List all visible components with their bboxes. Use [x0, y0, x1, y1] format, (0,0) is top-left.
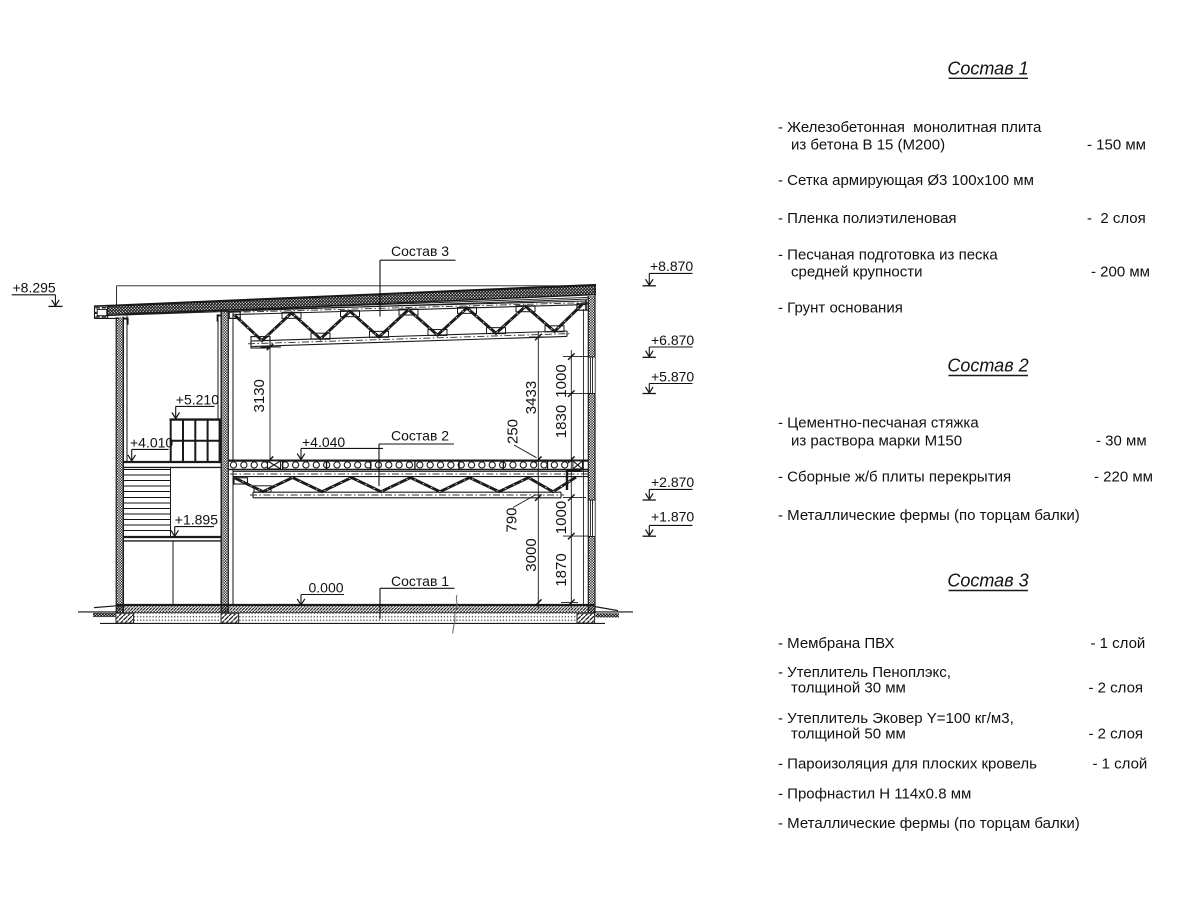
- svg-text:1000: 1000: [553, 501, 570, 534]
- svg-text:3433: 3433: [523, 381, 540, 414]
- svg-text:- 30 мм: - 30 мм: [1096, 432, 1147, 449]
- svg-text:+6.870: +6.870: [651, 332, 694, 348]
- svg-text:- 1 слой: - 1 слой: [1093, 755, 1148, 772]
- svg-text:+8.295: +8.295: [13, 279, 56, 295]
- svg-text:- 1 слой: - 1 слой: [1091, 635, 1146, 652]
- svg-text:средней крупности: средней крупности: [791, 263, 923, 280]
- svg-text:- 2 слоя: - 2 слоя: [1087, 210, 1146, 227]
- svg-text:3130: 3130: [251, 379, 268, 412]
- svg-text:- 2 слоя: - 2 слоя: [1089, 725, 1144, 742]
- svg-text:+2.870: +2.870: [651, 474, 694, 490]
- svg-text:из раствора марки М150: из раствора марки М150: [791, 432, 962, 449]
- svg-text:- Пароизоляция для плоских кро: - Пароизоляция для плоских кровель: [778, 755, 1037, 772]
- svg-text:- Металлические фермы (по торц: - Металлические фермы (по торцам балки): [778, 815, 1080, 832]
- svg-text:Состав 1: Состав 1: [947, 58, 1028, 78]
- svg-text:толщиной 30 мм: толщиной 30 мм: [791, 679, 906, 696]
- svg-text:Состав 3: Состав 3: [391, 243, 449, 259]
- svg-text:+8.870: +8.870: [650, 258, 693, 274]
- svg-text:- 220 мм: - 220 мм: [1094, 469, 1153, 486]
- svg-text:+4.010: +4.010: [130, 434, 173, 450]
- svg-text:- Сетка армирующая Ø3 100х100: - Сетка армирующая Ø3 100х100 мм: [778, 172, 1034, 189]
- svg-text:+5.210: +5.210: [176, 391, 219, 407]
- svg-text:1870: 1870: [553, 553, 570, 586]
- svg-text:250: 250: [505, 419, 522, 444]
- svg-text:- Сборные ж/б плиты перекрытия: - Сборные ж/б плиты перекрытия: [778, 469, 1011, 486]
- svg-text:- 200 мм: - 200 мм: [1091, 263, 1150, 280]
- svg-text:1830: 1830: [553, 405, 570, 438]
- svg-text:из бетона В 15 (М200): из бетона В 15 (М200): [791, 136, 945, 153]
- svg-text:- Пленка полиэтиленовая: - Пленка полиэтиленовая: [778, 210, 957, 227]
- svg-text:- Металлические фермы (по торц: - Металлические фермы (по торцам балки): [778, 507, 1080, 524]
- svg-text:- Мембрана ПВХ: - Мембрана ПВХ: [778, 635, 895, 652]
- svg-text:- Профнастил Н 114х0.8 мм: - Профнастил Н 114х0.8 мм: [778, 786, 971, 803]
- svg-text:- Грунт основания: - Грунт основания: [778, 300, 903, 317]
- svg-text:Состав 1: Состав 1: [391, 573, 449, 589]
- svg-text:+4.040: +4.040: [302, 434, 345, 450]
- svg-text:Состав 2: Состав 2: [947, 356, 1028, 376]
- svg-text:790: 790: [504, 507, 521, 532]
- svg-text:- Песчаная подготовка из песка: - Песчаная подготовка из песка: [778, 247, 998, 264]
- svg-text:толщиной 50 мм: толщиной 50 мм: [791, 725, 906, 742]
- svg-text:+1.895: +1.895: [175, 511, 218, 527]
- svg-text:+1.870: +1.870: [651, 509, 694, 525]
- svg-text:- 2 слоя: - 2 слоя: [1089, 679, 1144, 696]
- svg-text:3000: 3000: [523, 538, 540, 571]
- svg-text:Состав 3: Состав 3: [947, 571, 1028, 591]
- svg-text:- Железобетонная монолитная п: - Железобетонная монолитная плита: [778, 119, 1042, 136]
- svg-text:+5.870: +5.870: [651, 368, 694, 384]
- svg-text:- 150 мм: - 150 мм: [1087, 136, 1146, 153]
- svg-text:0.000: 0.000: [309, 579, 344, 595]
- svg-text:Состав 2: Состав 2: [391, 428, 449, 444]
- svg-text:1000: 1000: [553, 364, 570, 397]
- svg-text:- Цементно-песчаная стяжка: - Цементно-песчаная стяжка: [778, 414, 979, 431]
